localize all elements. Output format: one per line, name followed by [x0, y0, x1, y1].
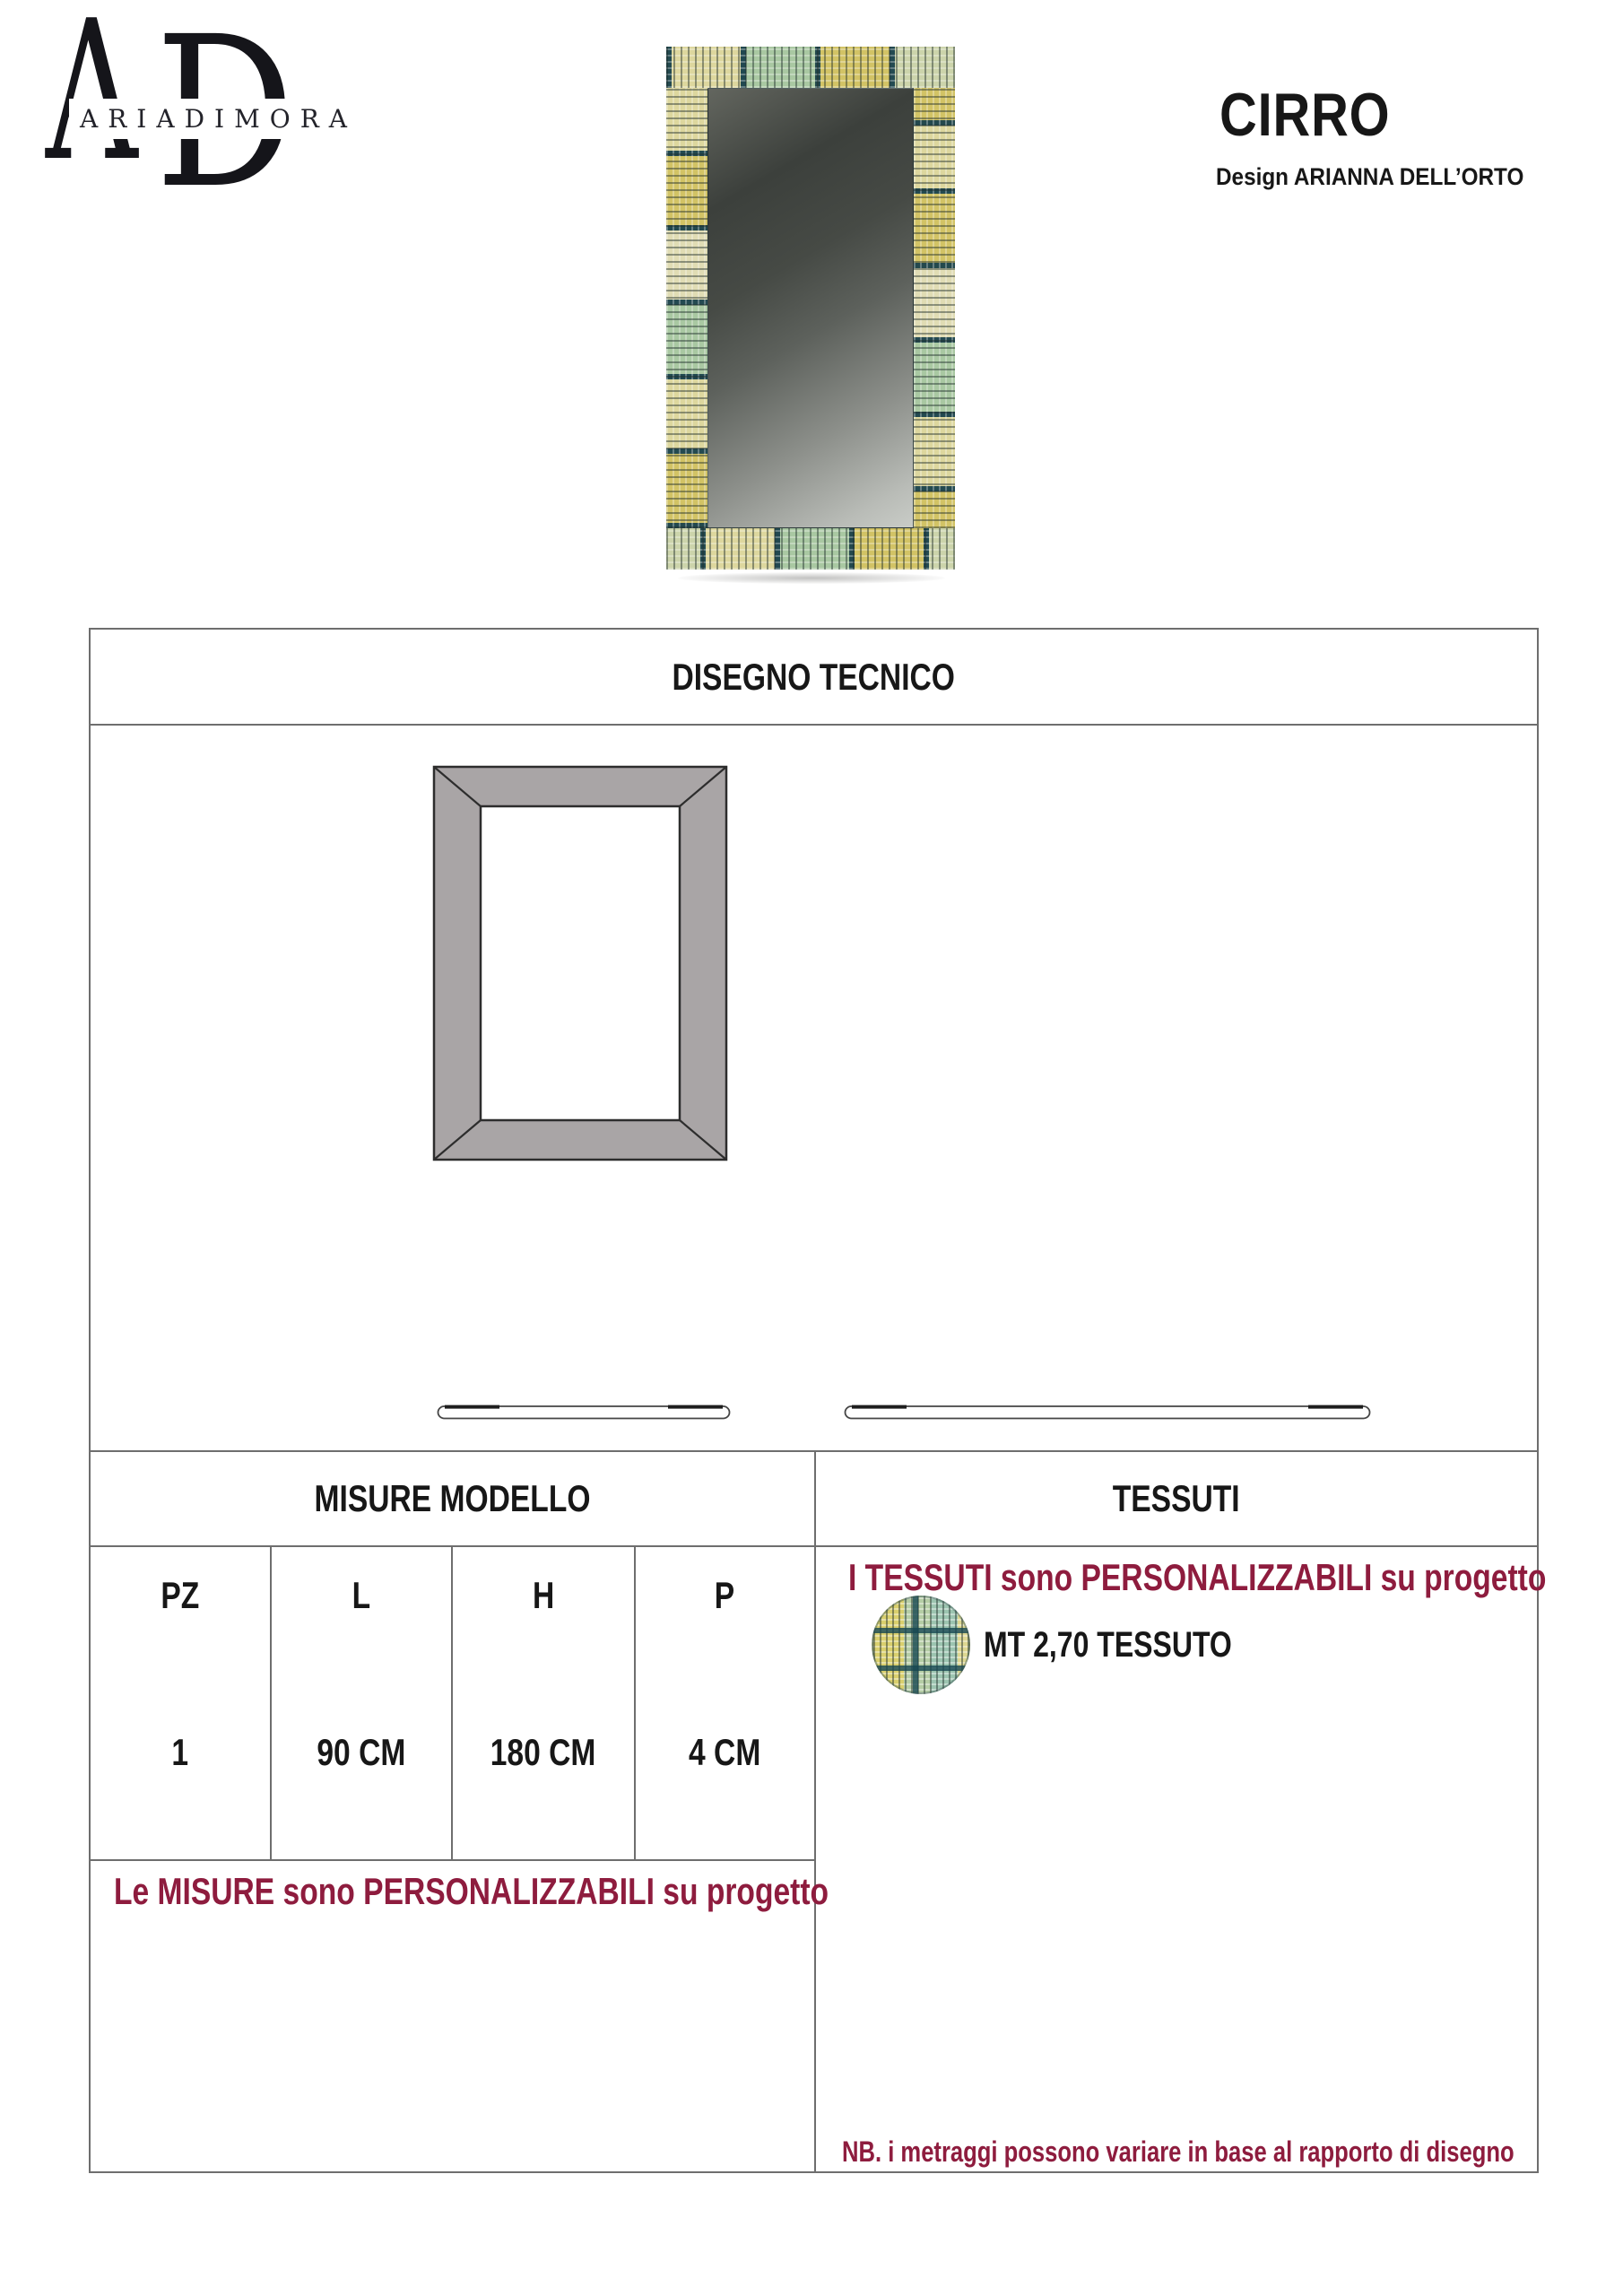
measures-title: MISURE MODELLO — [315, 1477, 591, 1520]
fabric-swatch-icon — [872, 1596, 970, 1694]
technical-drawing-profile-long — [844, 1404, 1371, 1422]
header-h-label: H — [533, 1574, 554, 1617]
fabrics-note-row: I TESSUTI sono PERSONALIZZABILI su proge… — [848, 1555, 1623, 1600]
value-p: 4 CM — [689, 1731, 760, 1774]
product-name: CIRRO — [1219, 84, 1390, 145]
fabrics-header-cell: TESSUTI — [816, 1452, 1537, 1545]
table-border-values-bottom — [91, 1859, 816, 1861]
meterage-row: MT 2,70 TESSUTO — [984, 1623, 1294, 1666]
measures-col-header-l: L — [272, 1547, 451, 1644]
nb-note-row: NB. i metraggi possono variare in base a… — [842, 2135, 1623, 2169]
measures-col-header-pz: PZ — [91, 1547, 270, 1644]
mirror-frame-left — [666, 88, 707, 528]
measures-col-header-h: H — [453, 1547, 634, 1644]
mirror-frame-right — [914, 88, 955, 528]
measures-col-header-p: P — [636, 1547, 814, 1644]
header-pz-label: PZ — [161, 1574, 200, 1617]
header-l-label: L — [352, 1574, 371, 1617]
fabrics-customizable-note: I TESSUTI sono PERSONALIZZABILI su proge… — [848, 1555, 1546, 1600]
brand-logo: A D ARIADIMORA — [49, 20, 327, 217]
measures-value-h: 180 CM — [453, 1646, 634, 1859]
technical-drawing-front-view — [432, 765, 728, 1161]
fabrics-title: TESSUTI — [1113, 1477, 1240, 1520]
measures-value-l: 90 CM — [272, 1646, 451, 1859]
table-border-row1 — [91, 724, 1537, 726]
measures-customizable-note: Le MISURE sono PERSONALIZZABILI su proge… — [114, 1869, 829, 1914]
table-divider-middle — [814, 1450, 816, 2171]
value-pz: 1 — [172, 1731, 189, 1774]
mirror-frame-bottom — [666, 528, 955, 570]
logo-wordmark: ARIADIMORA — [69, 99, 360, 139]
header-p-label: P — [715, 1574, 734, 1617]
value-h: 180 CM — [490, 1731, 596, 1774]
measures-note-row: Le MISURE sono PERSONALIZZABILI su proge… — [114, 1869, 1007, 1914]
measures-value-p: 4 CM — [636, 1646, 814, 1859]
nb-note: NB. i metraggi possono variare in base a… — [842, 2135, 1515, 2169]
spec-sheet-page: A D ARIADIMORA CIRRO Design ARIANNA DELL… — [0, 0, 1623, 2296]
measures-value-pz: 1 — [91, 1646, 270, 1859]
technical-drawing-header-cell: DISEGNO TECNICO — [91, 630, 1537, 724]
product-designer-line: Design ARIANNA DELL’ORTO — [1216, 162, 1523, 191]
mirror-shadow — [678, 572, 945, 584]
mirror-glass — [707, 88, 914, 528]
value-l: 90 CM — [317, 1731, 406, 1774]
mirror-frame-top — [666, 47, 955, 88]
technical-drawing-title: DISEGNO TECNICO — [673, 656, 956, 699]
meterage-label: MT 2,70 TESSUTO — [984, 1623, 1232, 1666]
logo-monogram-a: A — [46, 0, 137, 187]
technical-drawing-profile-short — [437, 1404, 731, 1422]
spec-table: DISEGNO TECNICO MISURE MODELLO TESSUTI P… — [89, 628, 1539, 2173]
measures-header-cell: MISURE MODELLO — [91, 1452, 814, 1545]
product-photo-mirror — [666, 47, 955, 570]
